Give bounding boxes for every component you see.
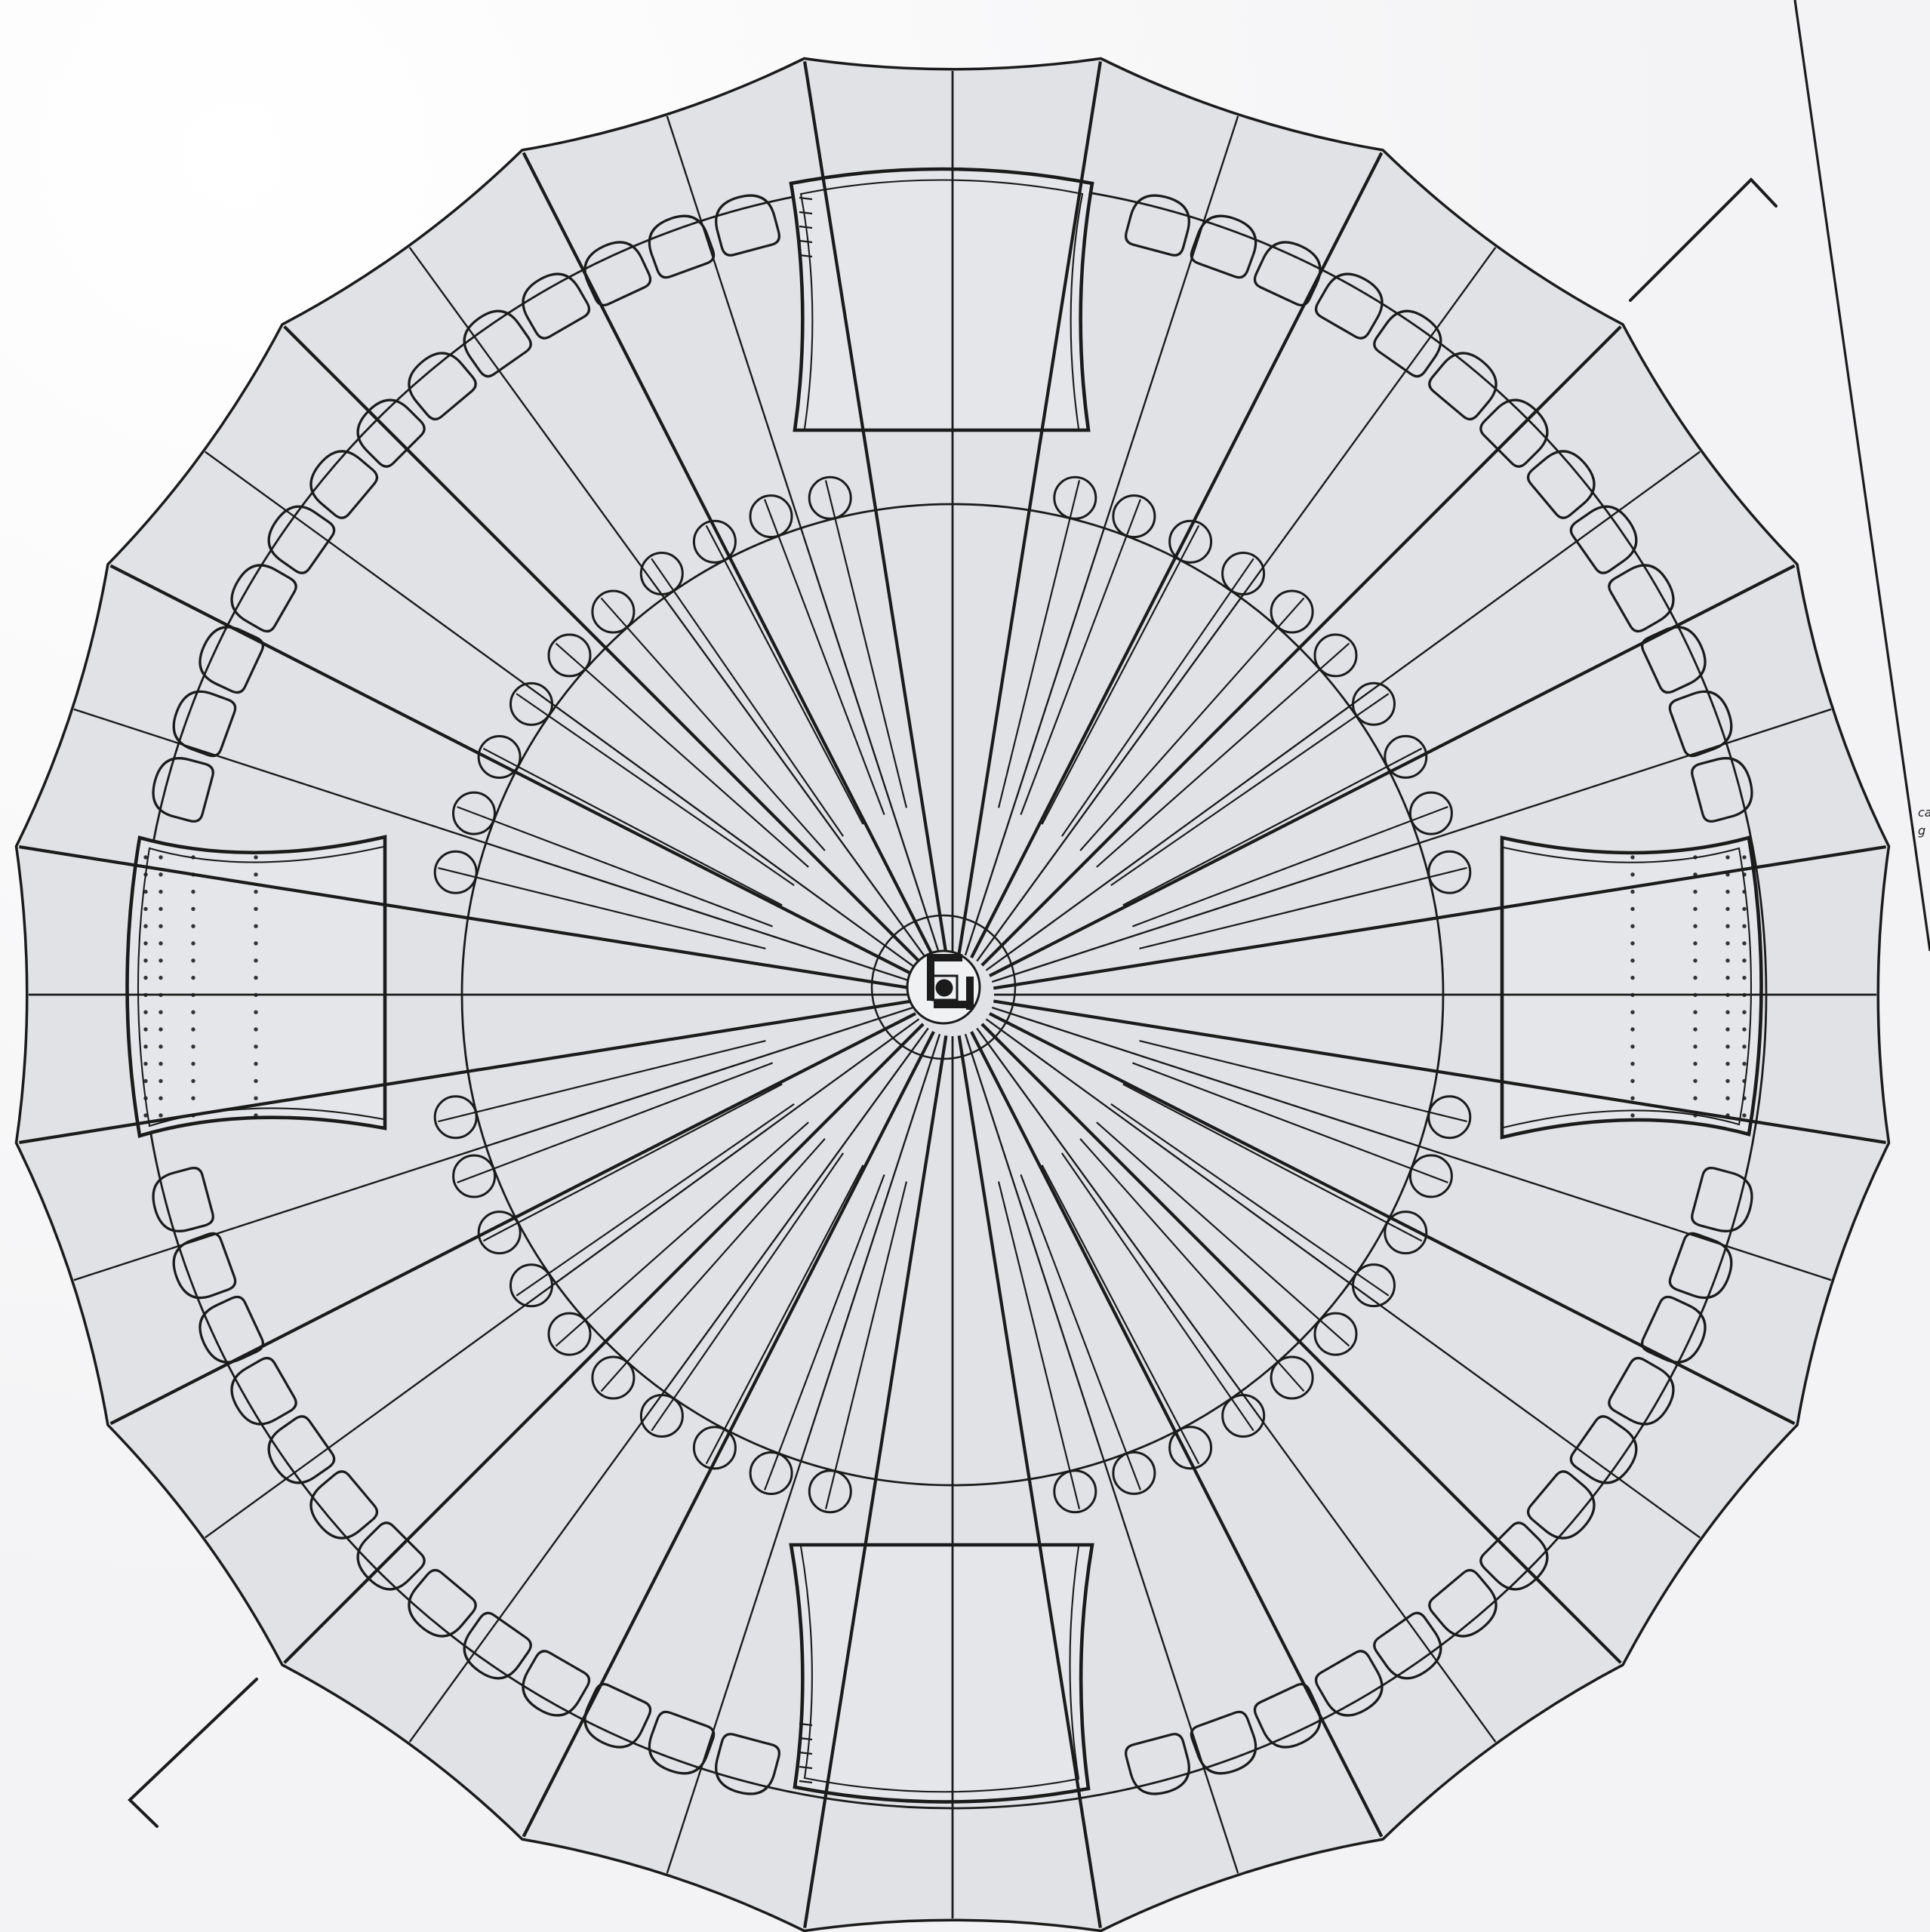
stitch-dot <box>143 1062 147 1066</box>
stitch-dot <box>254 890 257 894</box>
stitch-dot <box>1725 1011 1729 1014</box>
stitch-dot <box>254 993 257 997</box>
stitch-dot <box>254 1113 257 1117</box>
stitch-dot <box>1693 1062 1697 1066</box>
stitch-dot <box>1630 1079 1634 1083</box>
stitch-dot <box>143 1113 147 1117</box>
stitch-dot <box>143 941 147 945</box>
stitch-dot <box>191 958 195 962</box>
stitch-dot <box>1725 993 1729 997</box>
stitch-dot <box>1630 993 1634 997</box>
stitch-dot <box>159 976 162 980</box>
stitch-dot <box>1630 855 1634 859</box>
stitch-dot <box>1742 890 1746 894</box>
stitch-dot <box>1742 1079 1746 1083</box>
stitch-dot <box>159 1062 162 1066</box>
stitch-dot <box>1725 1113 1729 1117</box>
stitch-dot <box>1742 993 1746 997</box>
stitch-dot <box>1725 872 1729 876</box>
stitch-dot <box>143 993 147 997</box>
stitch-dot <box>1630 976 1634 980</box>
stitch-dot <box>254 1079 257 1083</box>
stitch-dot <box>254 924 257 928</box>
stitch-dot <box>1725 1097 1729 1100</box>
stitch-dot <box>254 872 257 876</box>
edge-annotation-text: g <box>1918 823 1925 838</box>
stitch-dot <box>254 855 257 859</box>
stitch-dot <box>191 1062 195 1066</box>
pinwheel-bar <box>966 977 974 1010</box>
stitch-dot <box>1693 1079 1697 1083</box>
stitch-dot <box>1693 941 1697 945</box>
stitch-dot <box>1693 1011 1697 1014</box>
stitch-dot <box>191 907 195 911</box>
stitch-dot <box>1630 958 1634 962</box>
stitch-dot <box>159 958 162 962</box>
stitch-dot <box>1693 907 1697 911</box>
stitch-dot <box>143 872 147 876</box>
stitch-dot <box>1693 993 1697 997</box>
stitch-dot <box>191 924 195 928</box>
stitch-dot <box>191 872 195 876</box>
stitch-dot <box>1725 924 1729 928</box>
stitch-dot <box>1725 1044 1729 1048</box>
stitch-dot <box>1742 872 1746 876</box>
stitch-dot <box>191 941 195 945</box>
stitch-dot <box>143 976 147 980</box>
stitch-dot <box>1742 907 1746 911</box>
stitch-dot <box>1630 1062 1634 1066</box>
stitch-dot <box>1630 872 1634 876</box>
tent-canopy-plan-drawing: cag <box>0 0 1930 1932</box>
stitch-dot <box>159 1113 162 1117</box>
stitch-dot <box>143 1097 147 1100</box>
stitch-dot <box>1693 1044 1697 1048</box>
stitch-dot <box>143 1044 147 1048</box>
stitch-dot <box>143 1079 147 1083</box>
stitch-dot <box>191 1011 195 1014</box>
stitch-dot <box>1725 890 1729 894</box>
stitch-dot <box>1630 1027 1634 1031</box>
stitch-dot <box>1693 1027 1697 1031</box>
hub-center-dot <box>936 980 953 997</box>
stitch-dot <box>159 1079 162 1083</box>
stitch-dot <box>191 1113 195 1117</box>
stitch-dot <box>1630 941 1634 945</box>
stitch-dot <box>1630 890 1634 894</box>
stitch-dot <box>1742 924 1746 928</box>
stitch-dot <box>191 993 195 997</box>
stitch-dot <box>1742 958 1746 962</box>
panel-fill-east <box>1502 838 1762 1137</box>
stitch-dot <box>1725 1079 1729 1083</box>
stitch-dot <box>1725 976 1729 980</box>
drawing-stage: cag <box>0 0 1930 1932</box>
stitch-dot <box>191 1027 195 1031</box>
stitch-dot <box>254 1062 257 1066</box>
stitch-dot <box>1693 872 1697 876</box>
stitch-dot <box>254 907 257 911</box>
stitch-dot <box>1630 1097 1634 1100</box>
stitch-dot <box>159 855 162 859</box>
stitch-dot <box>191 1079 195 1083</box>
stitch-dot <box>191 1044 195 1048</box>
stitch-dot <box>254 941 257 945</box>
stitch-dot <box>1742 1113 1746 1117</box>
stitch-dot <box>1742 1027 1746 1031</box>
stitch-dot <box>159 924 162 928</box>
stitch-dot <box>254 1011 257 1014</box>
stitch-dot <box>1693 1113 1697 1117</box>
stitch-dot <box>1630 924 1634 928</box>
stitch-dot <box>1725 907 1729 911</box>
stitch-dot <box>159 1011 162 1014</box>
stitch-dot <box>254 958 257 962</box>
stitch-dot <box>1693 855 1697 859</box>
stitch-dot <box>143 1011 147 1014</box>
stitch-dot <box>254 1044 257 1048</box>
stitch-dot <box>143 1027 147 1031</box>
stitch-dot <box>1725 855 1729 859</box>
stitch-dot <box>191 976 195 980</box>
stitch-dot <box>143 890 147 894</box>
stitch-dot <box>159 872 162 876</box>
stitch-dot <box>1742 855 1746 859</box>
stitch-dot <box>191 890 195 894</box>
stitch-dot <box>254 976 257 980</box>
stitch-dot <box>159 1044 162 1048</box>
stitch-dot <box>1630 1011 1634 1014</box>
stitch-dot <box>1742 1011 1746 1014</box>
stitch-dot <box>1742 941 1746 945</box>
stitch-dot <box>143 855 147 859</box>
stitch-dot <box>1742 1097 1746 1100</box>
stitch-dot <box>159 1097 162 1100</box>
stitch-dot <box>254 1027 257 1031</box>
stitch-dot <box>1630 907 1634 911</box>
pinwheel-bar <box>934 1001 969 1008</box>
stitch-dot <box>143 924 147 928</box>
stitch-dot <box>254 1097 257 1100</box>
stitch-dot <box>159 1027 162 1031</box>
stitch-dot <box>159 993 162 997</box>
stitch-dot <box>1742 1062 1746 1066</box>
stitch-dot <box>191 855 195 859</box>
stitch-dot <box>1693 890 1697 894</box>
stitch-dot <box>1693 924 1697 928</box>
stitch-dot <box>1725 1027 1729 1031</box>
stitch-dot <box>1725 958 1729 962</box>
stitch-dot <box>1630 1113 1634 1117</box>
stitch-dot <box>1742 1044 1746 1048</box>
edge-annotation-text: ca <box>1918 805 1930 820</box>
stitch-dot <box>1693 1097 1697 1100</box>
stitch-dot <box>1725 941 1729 945</box>
stitch-dot <box>159 890 162 894</box>
stitch-dot <box>1742 976 1746 980</box>
stitch-dot <box>159 907 162 911</box>
stitch-dot <box>1725 1062 1729 1066</box>
stitch-dot <box>1693 958 1697 962</box>
stitch-dot <box>191 1097 195 1100</box>
stitch-dot <box>143 907 147 911</box>
stitch-dot <box>1693 976 1697 980</box>
stitch-dot <box>159 941 162 945</box>
stitch-dot <box>1630 1044 1634 1048</box>
stitch-dot <box>143 958 147 962</box>
